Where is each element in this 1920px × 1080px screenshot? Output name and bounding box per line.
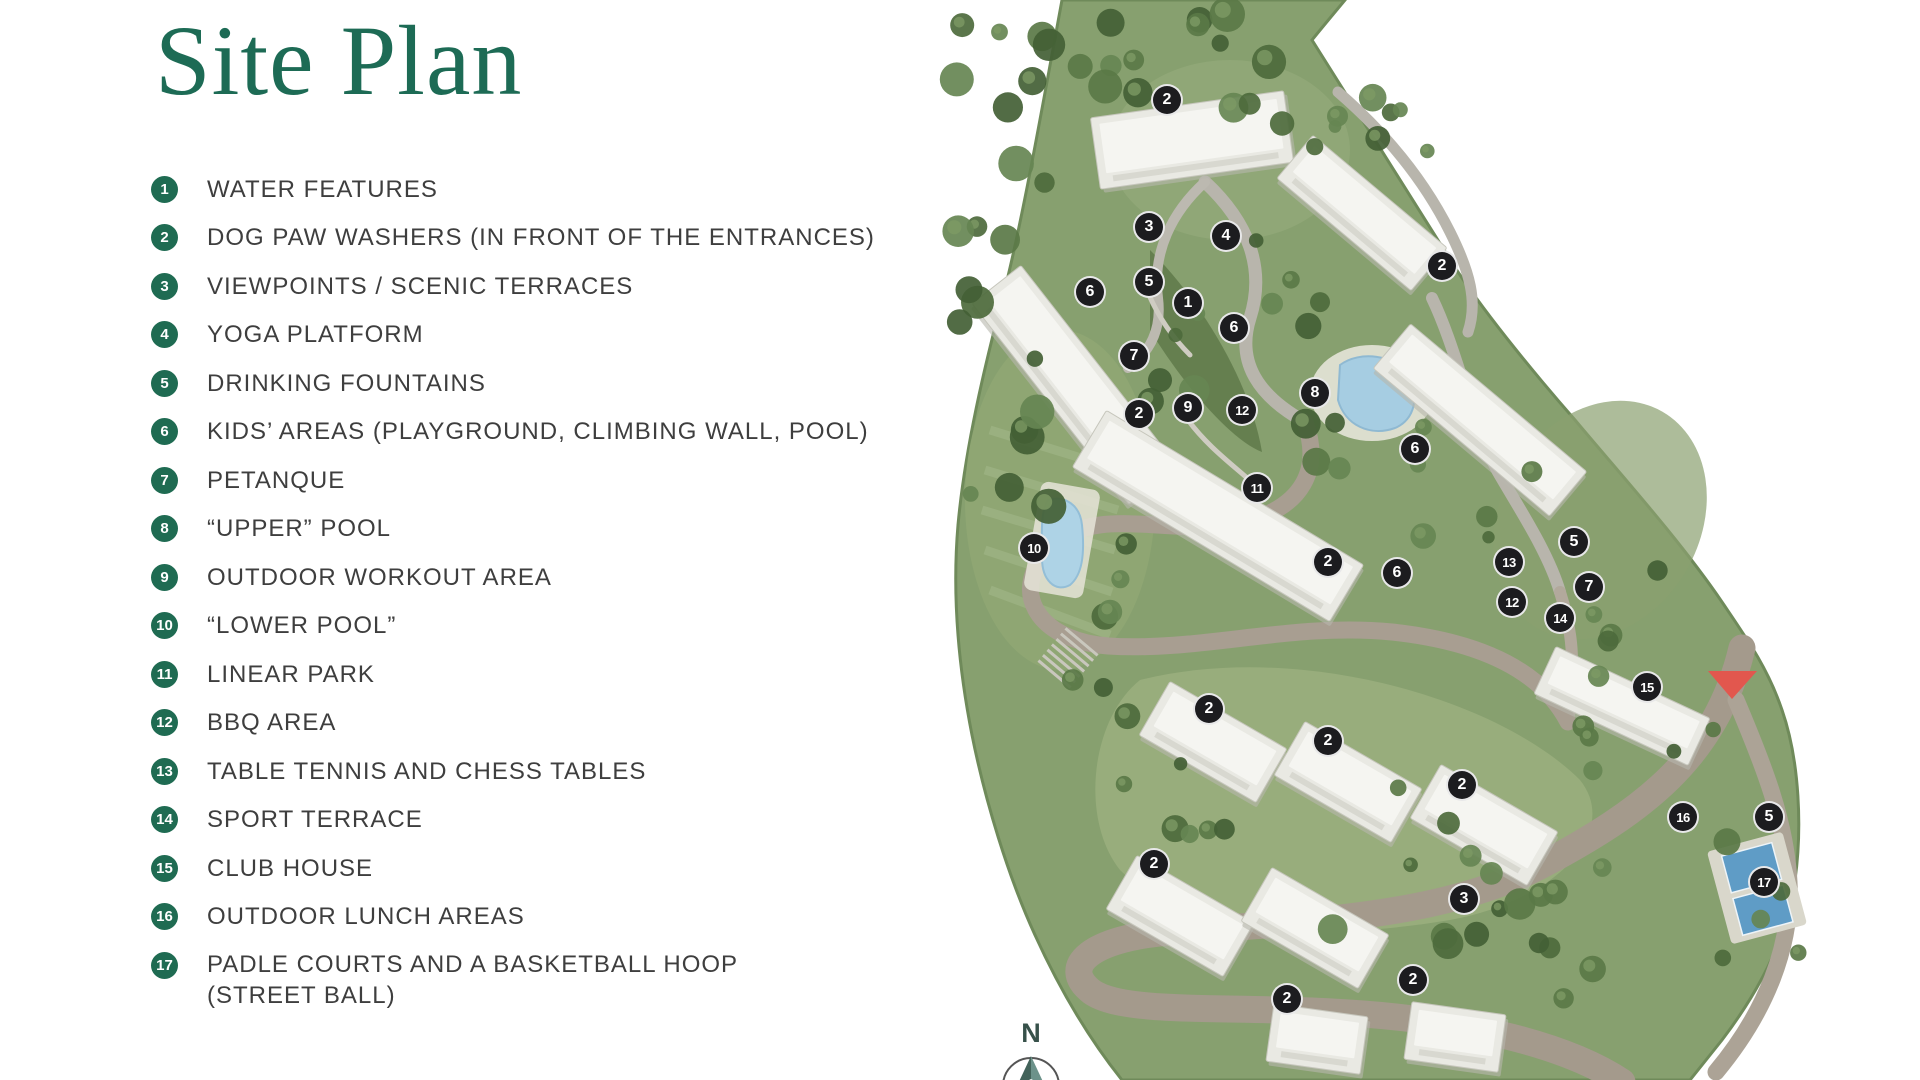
- tree: [1574, 574, 1597, 597]
- tree-highlight: [1128, 83, 1141, 96]
- legend-badge: 4: [151, 321, 178, 348]
- tree-highlight: [1414, 527, 1425, 538]
- tree: [1306, 138, 1323, 155]
- tree-highlight: [1023, 71, 1036, 84]
- legend-badge: 5: [151, 370, 178, 397]
- tree: [1433, 928, 1464, 959]
- tree: [1772, 882, 1791, 901]
- tree-highlight: [1576, 719, 1586, 729]
- tree: [1261, 293, 1283, 315]
- legend-label: OUTDOOR LUNCH AREAS: [178, 901, 525, 932]
- tree-highlight: [1547, 883, 1558, 894]
- legend-item: 5DRINKING FOUNTAINS: [151, 359, 931, 408]
- tree-highlight: [1330, 109, 1339, 118]
- tree: [1239, 93, 1261, 115]
- tree-highlight: [1257, 50, 1272, 65]
- tree-highlight: [1118, 778, 1125, 785]
- legend-item: 14SPORT TERRACE: [151, 796, 931, 845]
- tree-highlight: [1418, 421, 1426, 429]
- tree-highlight: [1532, 887, 1543, 898]
- tree-highlight: [1596, 861, 1604, 869]
- tree: [1168, 328, 1182, 342]
- legend-badge: 7: [151, 467, 178, 494]
- tree-highlight: [1190, 16, 1200, 26]
- tree-highlight: [1405, 860, 1412, 867]
- tree: [1667, 744, 1682, 759]
- tree: [1302, 448, 1330, 476]
- tree: [1328, 457, 1350, 479]
- tree: [1598, 631, 1619, 652]
- tree: [995, 473, 1024, 502]
- tree-highlight: [1369, 130, 1380, 141]
- tree: [963, 486, 979, 502]
- legend-badge: 17: [151, 952, 178, 979]
- tree-highlight: [1494, 903, 1502, 911]
- tree: [1437, 812, 1460, 835]
- legend-badge: 1: [151, 176, 178, 203]
- tree-highlight: [1557, 991, 1566, 1000]
- legend-badge: 6: [151, 418, 178, 445]
- site-plan-page: N 23425616789122611105132671214152221652…: [0, 0, 1920, 1080]
- legend-item: 2DOG PAW WASHERS (IN FRONT OF THE ENTRAN…: [151, 214, 931, 263]
- tree-highlight: [1193, 308, 1200, 315]
- tree: [1249, 233, 1264, 248]
- legend-item: 4YOGA PLATFORM: [151, 311, 931, 360]
- tree: [1325, 413, 1345, 433]
- tree-highlight: [1583, 960, 1595, 972]
- tree: [956, 276, 983, 303]
- tree-highlight: [1119, 536, 1129, 546]
- tree-highlight: [954, 17, 965, 28]
- tree: [1329, 120, 1342, 133]
- tree-highlight: [1591, 669, 1601, 679]
- legend-item: 7PETANQUE: [151, 456, 931, 505]
- page-title: Site Plan: [155, 11, 522, 111]
- tree: [1647, 560, 1667, 580]
- tree-highlight: [1215, 2, 1231, 18]
- tree: [1706, 722, 1721, 737]
- tree: [1020, 395, 1054, 429]
- tree: [990, 225, 1020, 255]
- tree: [1181, 825, 1199, 843]
- tree-highlight: [1141, 392, 1153, 404]
- tree-highlight: [1525, 464, 1534, 473]
- legend-label: OUTDOOR WORKOUT AREA: [178, 562, 552, 593]
- tree: [947, 309, 973, 335]
- tree: [1464, 922, 1489, 947]
- tree: [998, 146, 1034, 182]
- compass-icon: N: [1003, 1018, 1059, 1080]
- tree: [1179, 375, 1210, 406]
- legend-badge: 16: [151, 903, 178, 930]
- tree-highlight: [1412, 459, 1419, 466]
- tree: [940, 62, 974, 96]
- tree: [1529, 933, 1549, 953]
- tree-highlight: [1036, 494, 1052, 510]
- tree: [1482, 531, 1494, 543]
- legend-label: KIDS’ AREAS (PLAYGROUND, CLIMBING WALL, …: [178, 416, 869, 447]
- tree: [1033, 29, 1065, 61]
- tree-highlight: [1588, 609, 1596, 617]
- tree: [1714, 828, 1741, 855]
- tree: [1212, 35, 1229, 52]
- tree-highlight: [1202, 823, 1210, 831]
- tree-highlight: [1114, 573, 1122, 581]
- legend-badge: 14: [151, 806, 178, 833]
- compass-label: N: [1021, 1018, 1041, 1048]
- tree-highlight: [1126, 53, 1135, 62]
- legend-item: 15CLUB HOUSE: [151, 844, 931, 893]
- legend-label: WATER FEATURES: [178, 174, 438, 205]
- tree: [1393, 102, 1408, 117]
- tree-highlight: [1295, 413, 1308, 426]
- tree: [993, 92, 1023, 122]
- legend-item: 1WATER FEATURES: [151, 165, 931, 214]
- tree-highlight: [994, 26, 1002, 34]
- tree-highlight: [1463, 848, 1473, 858]
- tree-highlight: [1102, 603, 1113, 614]
- tree: [1476, 506, 1497, 527]
- legend-label: LINEAR PARK: [178, 659, 375, 690]
- legend-badge: 11: [151, 661, 178, 688]
- tree: [1034, 172, 1054, 192]
- legend-label: YOGA PLATFORM: [178, 319, 424, 350]
- tree: [1583, 761, 1602, 780]
- tree: [1318, 914, 1348, 944]
- legend-badge: 10: [151, 612, 178, 639]
- legend-badge: 9: [151, 564, 178, 591]
- tree-highlight: [1065, 672, 1075, 682]
- legend-list: 1WATER FEATURES2DOG PAW WASHERS (IN FRON…: [151, 165, 931, 1011]
- legend-item: 6KIDS’ AREAS (PLAYGROUND, CLIMBING WALL,…: [151, 408, 931, 457]
- tree-highlight: [1422, 146, 1429, 153]
- tree: [1751, 910, 1770, 929]
- legend-item: 12BBQ AREA: [151, 699, 931, 748]
- tree-highlight: [1118, 707, 1130, 719]
- tree: [1068, 54, 1093, 79]
- legend-item: 16OUTDOOR LUNCH AREAS: [151, 893, 931, 942]
- legend-label: DOG PAW WASHERS (IN FRONT OF THE ENTRANC…: [178, 222, 875, 253]
- legend-badge: 15: [151, 855, 178, 882]
- legend-item: 10“LOWER POOL”: [151, 602, 931, 651]
- tree: [1390, 780, 1407, 797]
- tree-highlight: [1363, 88, 1375, 100]
- tree-highlight: [1166, 819, 1178, 831]
- legend-item: 13TABLE TENNIS AND CHESS TABLES: [151, 747, 931, 796]
- tree: [1214, 819, 1235, 840]
- legend-label: CLUB HOUSE: [178, 853, 373, 884]
- tree-highlight: [1285, 274, 1293, 282]
- legend-label: SPORT TERRACE: [178, 804, 423, 835]
- legend-label: BBQ AREA: [178, 707, 336, 738]
- legend-badge: 8: [151, 515, 178, 542]
- tree: [1310, 292, 1330, 312]
- legend-item: 11LINEAR PARK: [151, 650, 931, 699]
- tree: [1480, 862, 1503, 885]
- legend-label: PETANQUE: [178, 465, 345, 496]
- tree-highlight: [1793, 947, 1800, 954]
- legend-badge: 3: [151, 273, 178, 300]
- legend-badge: 13: [151, 758, 178, 785]
- tree: [1270, 111, 1294, 135]
- tree-highlight: [947, 220, 961, 234]
- legend-label: PADLE COURTS AND A BASKETBALL HOOP(STREE…: [178, 949, 738, 1011]
- legend-item: 3VIEWPOINTS / SCENIC TERRACES: [151, 262, 931, 311]
- legend-label: VIEWPOINTS / SCENIC TERRACES: [178, 271, 633, 302]
- tree: [1088, 70, 1122, 104]
- tree: [1027, 351, 1043, 367]
- tree: [1174, 757, 1187, 770]
- tree: [1094, 678, 1113, 697]
- legend-badge: 12: [151, 709, 178, 736]
- tree-highlight: [1583, 730, 1592, 739]
- legend-label: “LOWER POOL”: [178, 610, 396, 641]
- tree: [1097, 9, 1125, 37]
- legend-label: TABLE TENNIS AND CHESS TABLES: [178, 756, 646, 787]
- legend-item: 17PADLE COURTS AND A BASKETBALL HOOP(STR…: [151, 941, 931, 1011]
- legend-label: “UPPER” POOL: [178, 513, 391, 544]
- legend-badge: 2: [151, 224, 178, 251]
- legend-item: 8“UPPER” POOL: [151, 505, 931, 554]
- legend-item: 9OUTDOOR WORKOUT AREA: [151, 553, 931, 602]
- tree-highlight: [1223, 97, 1236, 110]
- legend-label: DRINKING FOUNTAINS: [178, 368, 486, 399]
- tree: [1295, 313, 1321, 339]
- tree: [1715, 950, 1732, 967]
